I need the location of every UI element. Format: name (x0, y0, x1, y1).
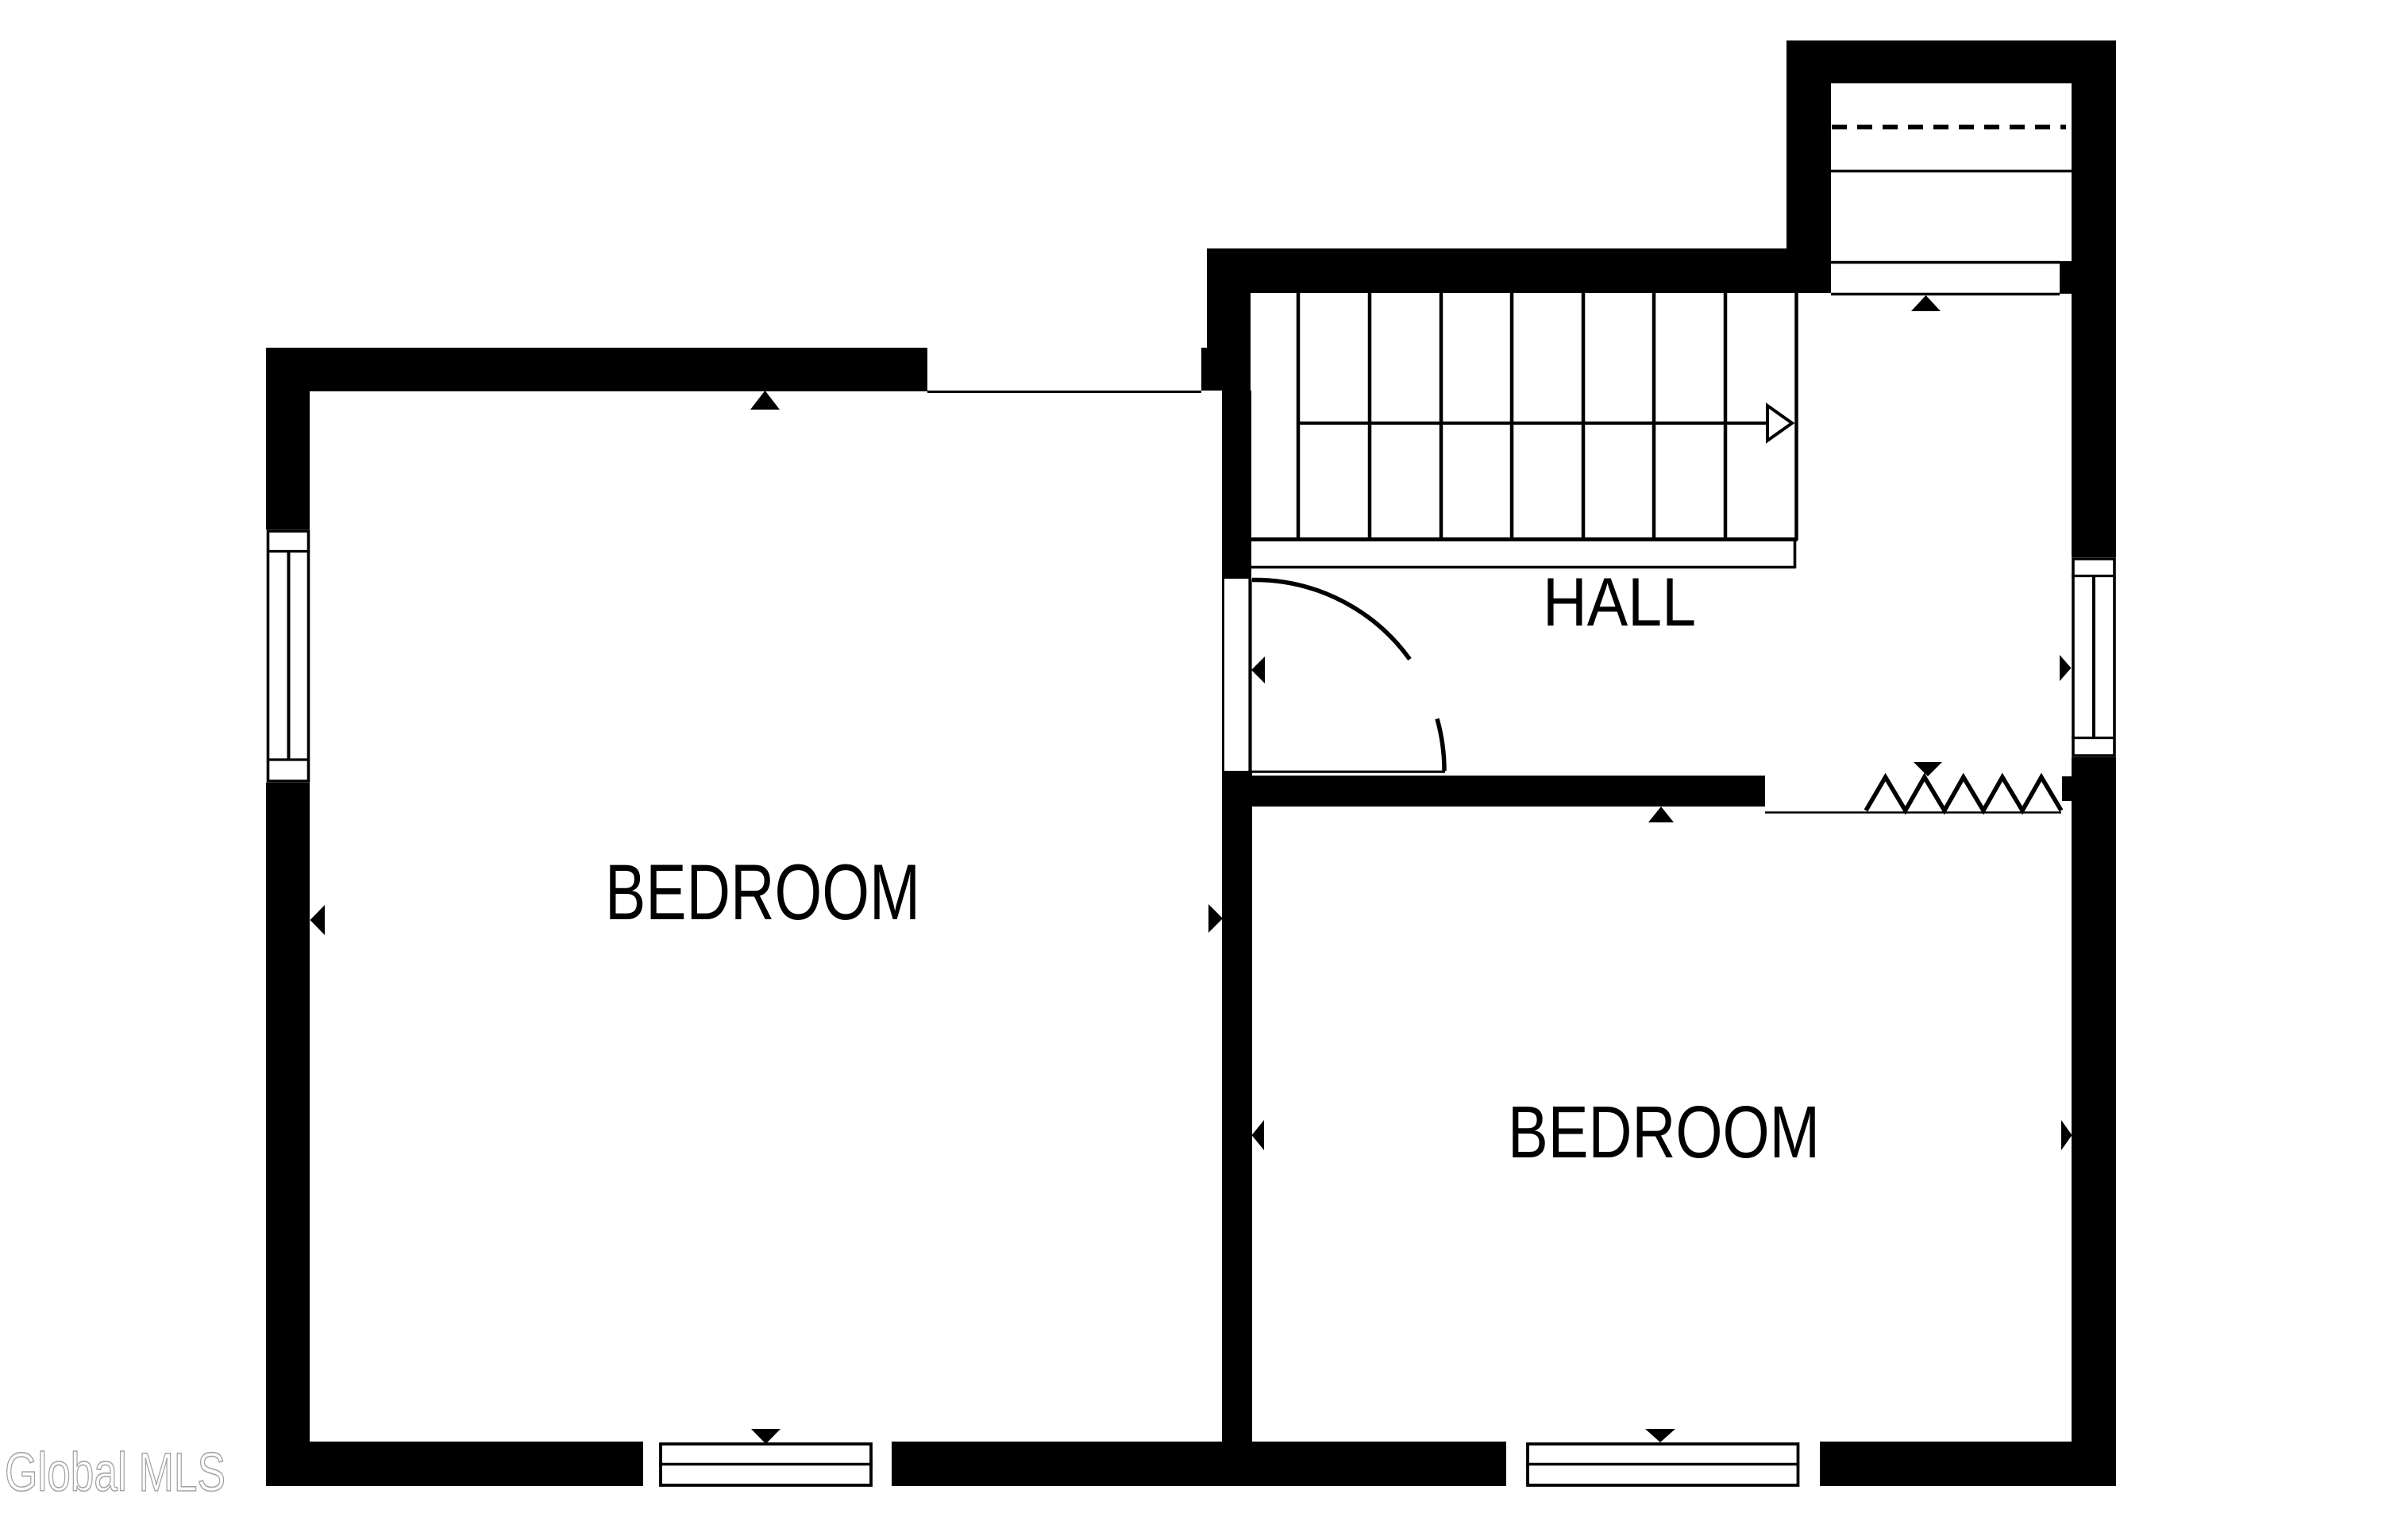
svg-text:BEDROOM: BEDROOM (1508, 1091, 1820, 1173)
svg-text:Global MLS: Global MLS (5, 1442, 225, 1503)
svg-text:BEDROOM: BEDROOM (605, 848, 920, 936)
svg-text:HALL: HALL (1543, 564, 1696, 641)
